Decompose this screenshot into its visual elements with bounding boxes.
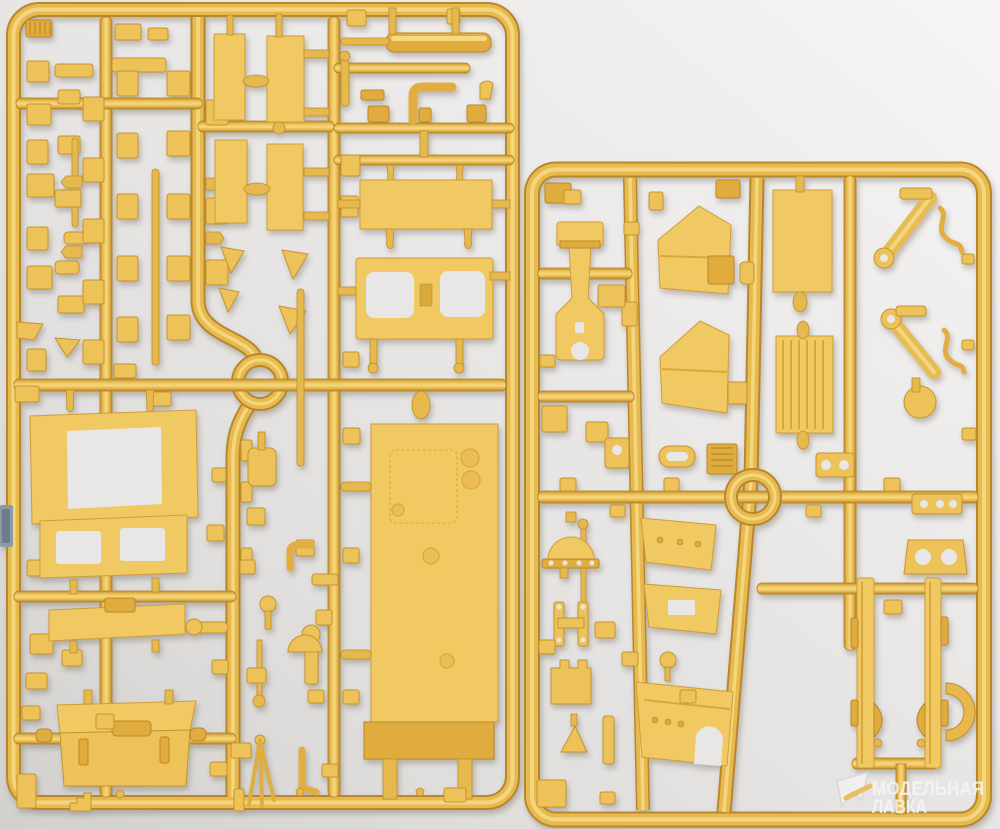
svg-text:ЛАВКА: ЛАВКА: [872, 797, 927, 818]
